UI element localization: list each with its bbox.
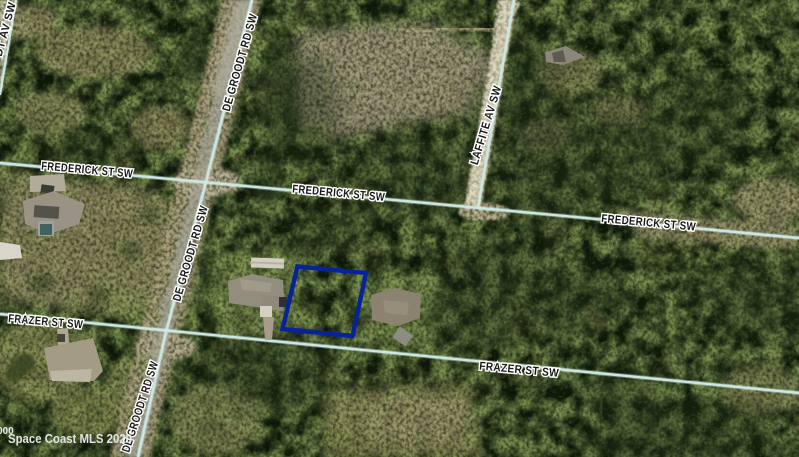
svg-text:Space Coast MLS 2020: Space Coast MLS 2020 — [8, 431, 132, 446]
